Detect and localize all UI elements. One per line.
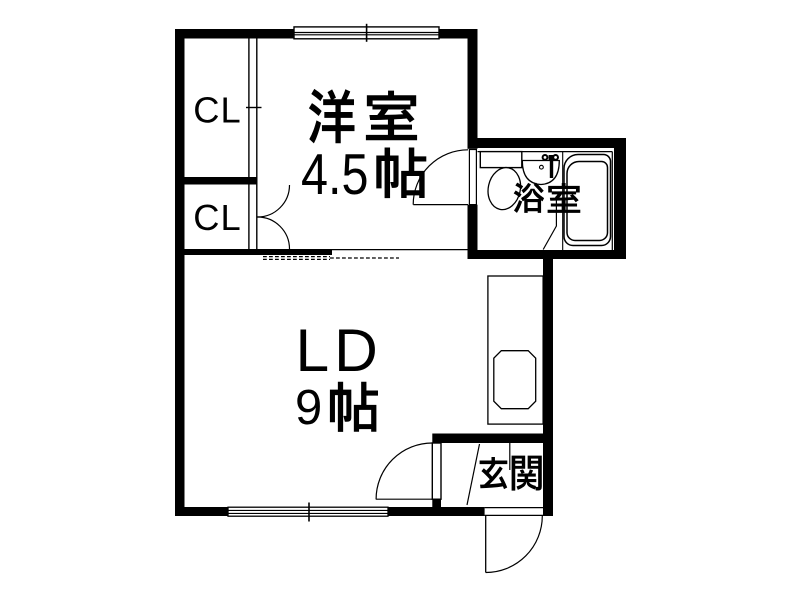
- svg-text:CL: CL: [193, 90, 241, 131]
- svg-text:9: 9: [295, 381, 322, 435]
- svg-text:LD: LD: [296, 316, 383, 384]
- svg-text:4.5: 4.5: [301, 143, 369, 207]
- svg-text:CL: CL: [193, 197, 241, 238]
